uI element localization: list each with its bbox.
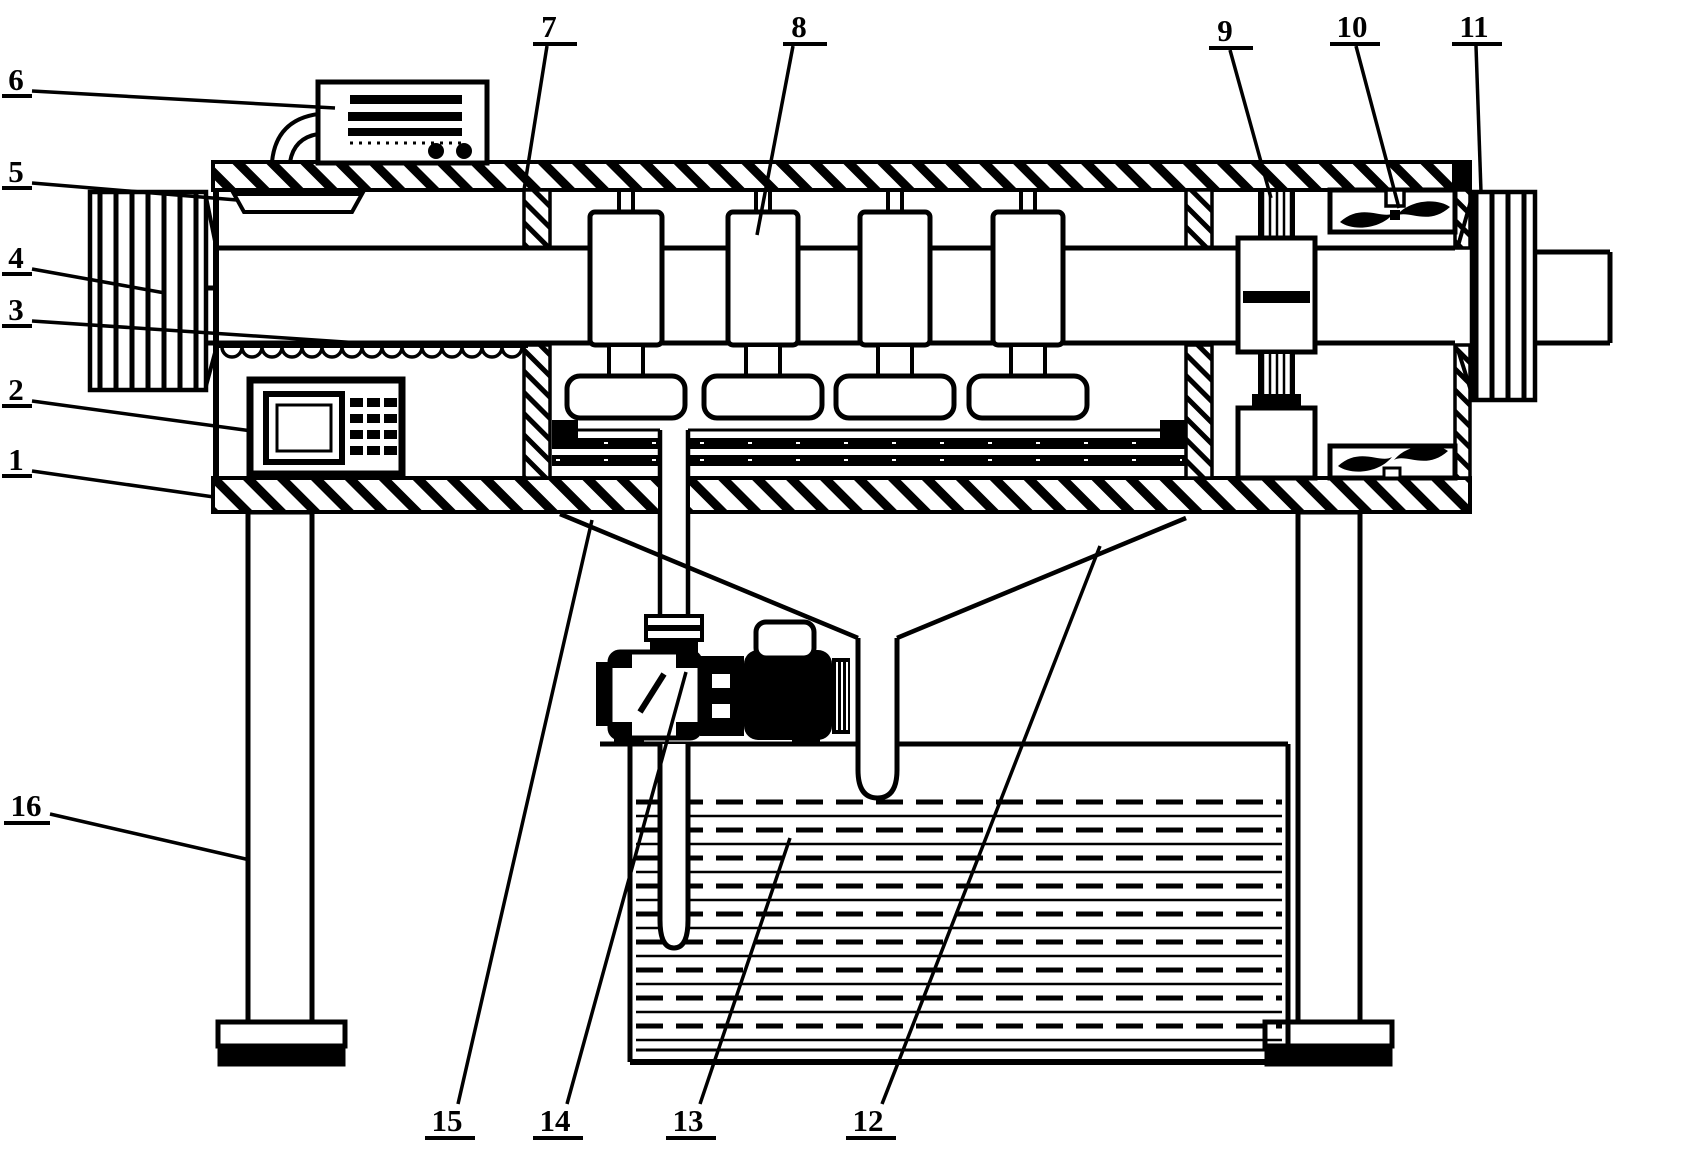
label-15-number: 15: [432, 1103, 463, 1138]
motor-body: [744, 650, 832, 740]
label-3-number: 3: [8, 292, 24, 327]
left-partition-lower: [524, 345, 550, 478]
left-leg: [248, 512, 312, 1026]
label-4-number: 4: [8, 240, 24, 275]
label-6-number: 6: [8, 62, 24, 97]
housing-top-wall: [213, 162, 1470, 190]
label-1-number: 1: [8, 442, 24, 477]
bottom-fan-stem: [1384, 468, 1400, 478]
drawing-canvas: 12345678910111213141516: [0, 0, 1686, 1149]
right-roller: [1472, 192, 1535, 400]
patent-figure: 12345678910111213141516: [0, 0, 1686, 1149]
label-14-number: 14: [540, 1103, 571, 1138]
clamp-gap: [1243, 291, 1310, 303]
funnel-outlet-tube: [858, 638, 897, 798]
right-partition-lower: [1186, 345, 1212, 478]
label-12-number: 12: [853, 1103, 884, 1138]
motor-cap: [756, 622, 814, 658]
top-fan: [1330, 190, 1455, 232]
right-leg: [1298, 512, 1360, 1026]
upper-threaded-stud: [1260, 190, 1293, 240]
control-panel: [250, 380, 402, 474]
device-knob-2: [456, 143, 472, 159]
label-7-number: 7: [541, 9, 557, 44]
suction-pipe: [660, 744, 688, 948]
right-partition-upper: [1186, 190, 1212, 248]
label-13-number: 13: [673, 1103, 704, 1138]
label-5-number: 5: [8, 154, 24, 189]
pipe-flange-lower: [646, 629, 702, 640]
lower-threaded-stud: [1260, 352, 1293, 396]
motor-foot: [792, 738, 820, 745]
left-foot-base: [218, 1046, 345, 1066]
sensor-bracket: [234, 194, 362, 212]
pump-foot: [614, 738, 644, 745]
pump-coupling: [700, 656, 744, 736]
device-knob-1: [428, 143, 444, 159]
trough-left-fitting: [552, 420, 578, 446]
left-foot-plate: [218, 1022, 345, 1046]
housing-bottom-wall-left: [213, 478, 660, 512]
housing-bottom-wall-right: [688, 478, 1470, 512]
label-8-number: 8: [791, 9, 807, 44]
bottom-fan: [1330, 445, 1455, 478]
top-fan-hub: [1390, 210, 1400, 220]
trough-right-fitting: [1160, 420, 1186, 446]
left-partition-upper: [524, 190, 550, 248]
right-foot-plate: [1265, 1022, 1392, 1046]
top-wall-right-cap: [1452, 162, 1470, 190]
clamp-base-block: [1238, 408, 1315, 478]
panel-screen-inner: [277, 405, 331, 451]
label-16-number: 16: [11, 788, 42, 823]
label-2-number: 2: [8, 372, 24, 407]
pipe-flange-upper: [646, 616, 702, 627]
label-9-number: 9: [1217, 13, 1233, 48]
label-11-number: 11: [1459, 9, 1488, 44]
label-10-number: 10: [1337, 9, 1368, 44]
valve-left-flange: [596, 662, 612, 726]
